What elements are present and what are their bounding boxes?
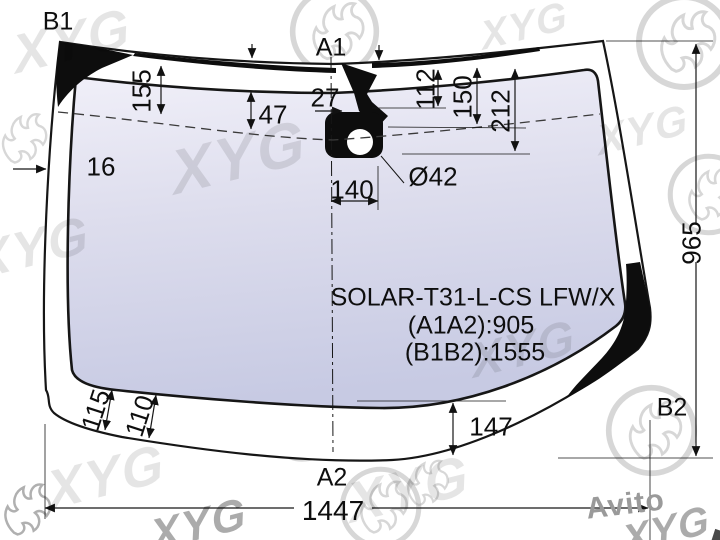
dim-965: 965 xyxy=(677,221,708,264)
label-a1: A1 xyxy=(316,34,347,63)
dim-hole-diameter: Ø42 xyxy=(408,162,457,193)
label-b1: B1 xyxy=(43,8,74,37)
dim-155: 155 xyxy=(127,69,158,112)
dim-212: 212 xyxy=(486,89,517,132)
dim-1447: 1447 xyxy=(302,495,364,527)
dim-150: 150 xyxy=(448,75,479,118)
dim-27: 27 xyxy=(311,83,340,114)
part-dim-a1a2: (A1A2):905 xyxy=(408,312,534,341)
dim-140: 140 xyxy=(330,175,373,206)
part-code: SOLAR-T31-L-CS LFW/X xyxy=(331,284,616,313)
dim-47: 47 xyxy=(259,100,288,131)
label-b2: B2 xyxy=(657,394,688,423)
windshield-diagram: XYG XYG XYG XYG XYG XYG XYG XYG XYG XYG … xyxy=(0,0,720,540)
label-a2: A2 xyxy=(317,464,348,493)
xyg-flame-watermark-dark xyxy=(5,485,50,535)
dim-112: 112 xyxy=(411,68,442,109)
part-dim-b1b2: (B1B2):1555 xyxy=(405,339,545,368)
dim-147: 147 xyxy=(469,412,512,443)
sensor-hole xyxy=(347,129,373,155)
dim-16: 16 xyxy=(87,152,116,183)
